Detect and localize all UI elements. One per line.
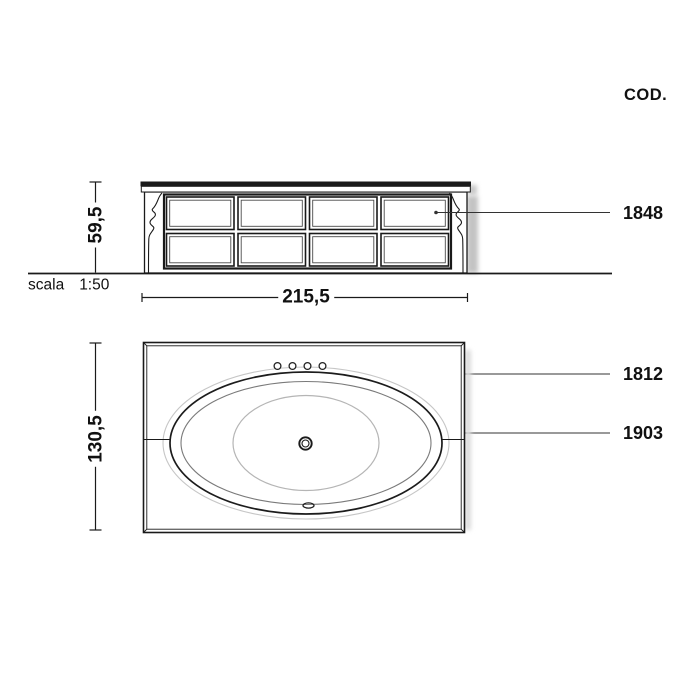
leader-dot-1848 [434,211,438,215]
scale-ratio: 1:50 [79,277,109,293]
front-elevation-view [141,182,479,274]
front-height-dimension: 59,5 [87,203,106,248]
scale-word: scala [28,277,64,293]
scale-note: scala 1:50 [28,277,109,293]
code-label-1812: 1812 [623,365,663,383]
top-rail-dark-band [141,182,472,187]
cod-header-label: COD. [624,87,667,104]
front-body-shadow [467,196,478,273]
top-rail-light-band [141,186,470,192]
code-label-1848: 1848 [623,204,663,222]
drawing-canvas [0,0,700,700]
plan-view [144,343,472,533]
front-width-dimension: 215,5 [278,288,334,307]
plan-depth-dimension: 130,5 [87,411,106,467]
technical-drawing-sheet: COD. scala 1:50 59,5 215,5 130,5 1848 18… [0,0,700,700]
plan-shadow [465,350,471,530]
code-label-1903: 1903 [623,424,663,442]
panel-grid [164,195,451,269]
